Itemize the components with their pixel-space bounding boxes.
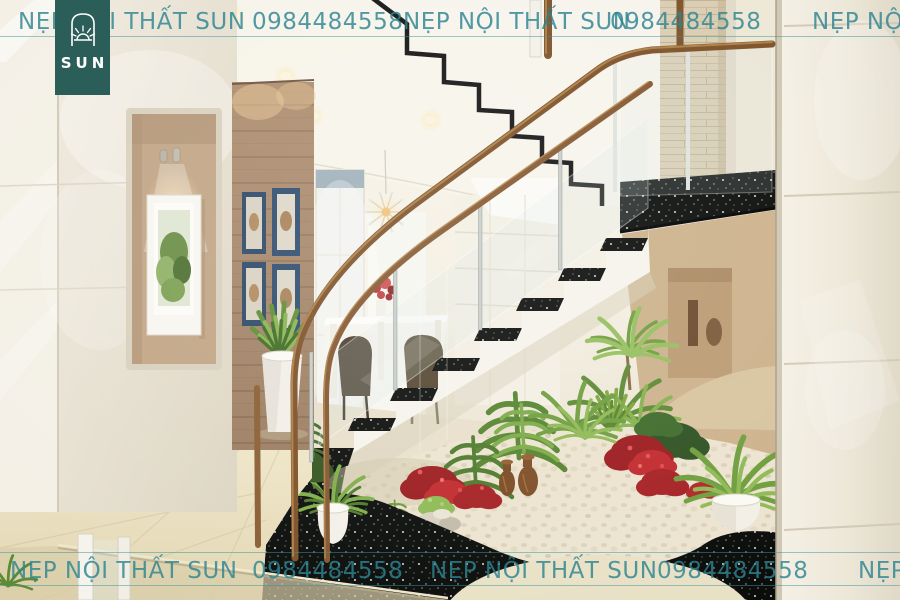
scene-rendering xyxy=(0,0,900,600)
sun-arch-icon xyxy=(66,10,100,50)
watermark-brand-text: NẸP NỘI THẤT SUN xyxy=(812,9,900,35)
watermark-line-top xyxy=(0,36,900,37)
ambient-glow xyxy=(0,0,900,600)
watermark-phone-text: 0984484558 xyxy=(610,9,761,35)
interior-render-photo: NẸP NỘI THẤT SUN 0984484558 NẸP NỘI THẤT… xyxy=(0,0,900,600)
brand-logo: SUN xyxy=(55,0,110,95)
watermark-line-bottom-upper xyxy=(0,552,900,553)
watermark-line-bottom-lower xyxy=(0,585,900,586)
watermark-brand-text: NẸP NỘI THẤT SUN xyxy=(858,558,900,584)
watermark-brand-text: NẸP NỘI THẤT SUN xyxy=(403,9,630,35)
logo-text: SUN xyxy=(57,54,109,72)
watermark-brand-text: NẸP NỘI THẤT SUN xyxy=(10,558,237,584)
watermark-brand-text: NẸP NỘI THẤT SUN xyxy=(18,9,245,35)
watermark-brand-text: NẸP NỘI THẤT SUN xyxy=(430,558,657,584)
watermark-phone-text: 0984484558 xyxy=(252,9,403,35)
watermark-phone-text: 0984484558 xyxy=(252,558,403,584)
watermark-phone-text: 0984484558 xyxy=(657,558,808,584)
